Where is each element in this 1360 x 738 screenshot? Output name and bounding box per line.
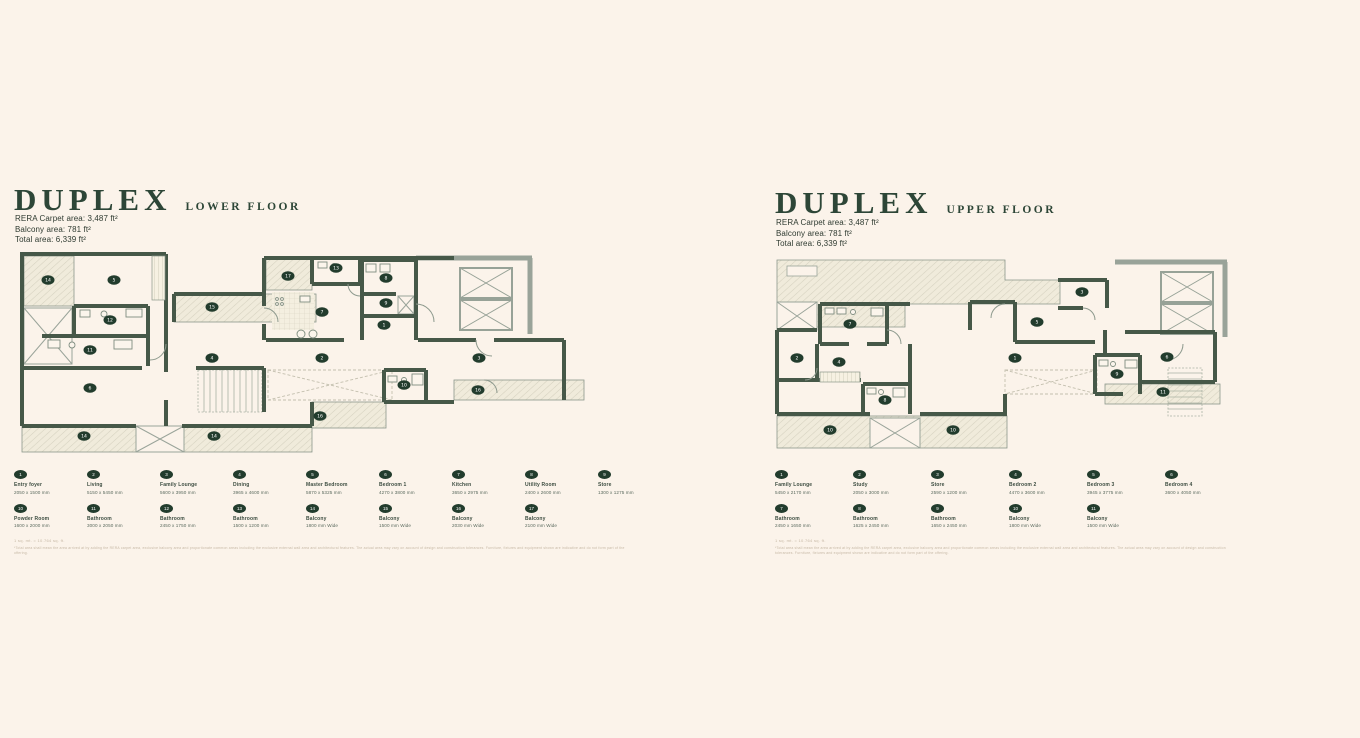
fineprint-lower: 1 sq. mt. = 10.764 sq. ft. *Total area s… <box>14 538 634 555</box>
svg-text:10: 10 <box>401 383 407 389</box>
room-name: Balcony <box>306 516 327 522</box>
room-name: Bathroom <box>87 516 112 522</box>
fineprint-disclaimer-lower: *Total area shall mean the area arrived … <box>14 546 634 555</box>
room-marker-icon: 4 <box>833 357 846 366</box>
svg-text:10: 10 <box>950 428 956 434</box>
room-marker-icon: 3 <box>473 353 486 362</box>
room-name: Kitchen <box>452 482 471 488</box>
room-marker-icon: 8 <box>380 273 393 282</box>
balcony-area-lower: Balcony area: 781 ft² <box>15 225 118 236</box>
floor-plan-lower-svg: 1451211614141517137891423101616 <box>14 248 634 463</box>
room-number-badge-icon: 15 <box>379 504 392 513</box>
room-number-badge-icon: 6 <box>379 470 392 479</box>
room-marker-icon: 2 <box>791 353 804 362</box>
room-dimensions: 2030 mm Wide <box>452 523 484 528</box>
room-marker-icon: 14 <box>78 431 91 440</box>
room-marker-icon: 15 <box>206 302 219 311</box>
floor-plan-upper-svg: 724810101536911 <box>775 252 1230 462</box>
void-dashed-region-upper <box>1005 370 1097 394</box>
room-dimensions: 2400 x 2600 mm <box>525 490 561 495</box>
room-number-badge-icon: 9 <box>931 504 944 513</box>
room-name: Bathroom <box>775 516 800 522</box>
room-name: Master Bedroom <box>306 482 348 488</box>
room-number-badge-icon: 4 <box>1009 470 1022 479</box>
room-marker-icon: 16 <box>472 385 485 394</box>
room-name: Bedroom 4 <box>1165 482 1192 488</box>
room-dimensions: 2590 x 1200 mm <box>931 490 967 495</box>
balcony-area-upper: Balcony area: 781 ft² <box>776 229 879 240</box>
room-name: Utility Room <box>525 482 556 488</box>
svg-text:8: 8 <box>884 398 887 404</box>
legend-item: 17Balcony2100 mm Wide <box>525 504 598 529</box>
room-marker-icon: 4 <box>206 353 219 362</box>
room-number-badge-icon: 1 <box>775 470 788 479</box>
room-name: Bathroom <box>853 516 878 522</box>
legend-item: 9Store1300 x 1275 mm <box>598 470 671 495</box>
room-number-badge-icon: 1 <box>14 470 27 479</box>
room-number-badge-icon: 17 <box>525 504 538 513</box>
room-number-badge-icon: 11 <box>1087 504 1100 513</box>
room-dimensions: 1800 mm Wide <box>1009 523 1041 528</box>
room-number-badge-icon: 8 <box>853 504 866 513</box>
room-number-badge-icon: 16 <box>452 504 465 513</box>
room-marker-icon: 9 <box>1111 369 1124 378</box>
room-marker-icon: 14 <box>42 275 55 284</box>
room-name: Store <box>931 482 945 488</box>
svg-text:15: 15 <box>209 305 215 311</box>
room-dimensions: 2050 x 1500 mm <box>14 490 50 495</box>
room-number-badge-icon: 14 <box>306 504 319 513</box>
room-dimensions: 1300 x 1275 mm <box>598 490 634 495</box>
room-dimensions: 4470 x 3600 mm <box>1009 490 1045 495</box>
svg-text:16: 16 <box>475 388 481 394</box>
room-number-badge-icon: 9 <box>598 470 611 479</box>
legend-item: 13Bathroom1500 x 1200 mm <box>233 504 306 529</box>
room-name: Bathroom <box>233 516 258 522</box>
room-marker-icon: 1 <box>378 320 391 329</box>
room-name: Entry foyer <box>14 482 42 488</box>
legend-item: 1Family Lounge5450 x 2170 mm <box>775 470 853 495</box>
room-number-badge-icon: 6 <box>1165 470 1178 479</box>
room-number-badge-icon: 11 <box>87 504 100 513</box>
room-name: Store <box>598 482 612 488</box>
room-name: Balcony <box>525 516 546 522</box>
room-marker-icon: 13 <box>330 263 343 272</box>
legend-item: 10Balcony1800 mm Wide <box>1009 504 1087 529</box>
legend-upper: 1Family Lounge5450 x 2170 mm2Study2050 x… <box>775 470 1243 528</box>
room-dimensions: 5450 x 2170 mm <box>775 490 811 495</box>
room-dimensions: 3965 x 4600 mm <box>233 490 269 495</box>
title-duplex-upper: DUPLEX <box>775 185 932 221</box>
room-marker-icon: 10 <box>398 380 411 389</box>
room-marker-icon: 10 <box>947 425 960 434</box>
svg-text:11: 11 <box>87 348 93 354</box>
room-marker-icon: 12 <box>104 315 117 324</box>
room-name: Bathroom <box>160 516 185 522</box>
room-name: Dining <box>233 482 249 488</box>
room-number-badge-icon: 3 <box>931 470 944 479</box>
room-marker-icon: 5 <box>1031 317 1044 326</box>
total-area-lower: Total area: 6,339 ft² <box>15 235 118 246</box>
svg-text:6: 6 <box>89 386 92 392</box>
floorplan-page: { "colors": { "background": "#fbf3ea", "… <box>0 0 1360 738</box>
room-dimensions: 4270 x 3800 mm <box>379 490 415 495</box>
room-marker-icon: 7 <box>316 307 329 316</box>
legend-item: 5Bedroom 33945 x 3775 mm <box>1087 470 1165 495</box>
room-marker-icon: 6 <box>1161 352 1174 361</box>
room-number-badge-icon: 7 <box>452 470 465 479</box>
legend-item: 3Family Lounge5600 x 3950 mm <box>160 470 233 495</box>
room-name: Balcony <box>379 516 400 522</box>
rera-carpet-area-upper: RERA Carpet area: 3,487 ft² <box>776 218 879 229</box>
title-duplex-lower: DUPLEX <box>14 182 171 218</box>
room-dimensions: 3650 x 2975 mm <box>452 490 488 495</box>
fineprint-disclaimer-upper: *Total area shall mean the area arrived … <box>775 546 1235 555</box>
title-lower: DUPLEX LOWER FLOOR <box>14 182 301 218</box>
room-dimensions: 1500 mm Wide <box>1087 523 1119 528</box>
room-dimensions: 5150 x 5450 mm <box>87 490 123 495</box>
legend-item: 2Living5150 x 5450 mm <box>87 470 160 495</box>
fineprint-conversion-lower: 1 sq. mt. = 10.764 sq. ft. <box>14 538 634 543</box>
legend-item: 14Balcony1800 mm Wide <box>306 504 379 529</box>
room-number-badge-icon: 2 <box>853 470 866 479</box>
area-block-upper: RERA Carpet area: 3,487 ft² Balcony area… <box>776 218 879 250</box>
room-number-badge-icon: 3 <box>160 470 173 479</box>
svg-text:5: 5 <box>113 278 116 284</box>
svg-text:2: 2 <box>796 356 799 362</box>
room-number-badge-icon: 10 <box>14 504 27 513</box>
svg-text:12: 12 <box>107 318 113 324</box>
legend-item: 7Kitchen3650 x 2975 mm <box>452 470 525 495</box>
legend-item: 5Master Bedroom5870 x 5325 mm <box>306 470 379 495</box>
svg-text:8: 8 <box>385 276 388 282</box>
room-dimensions: 5870 x 5325 mm <box>306 490 342 495</box>
svg-text:5: 5 <box>1036 320 1039 326</box>
room-number-badge-icon: 8 <box>525 470 538 479</box>
svg-text:1: 1 <box>383 323 386 329</box>
void-dashed-region-lower <box>268 370 392 400</box>
room-number-badge-icon: 5 <box>1087 470 1100 479</box>
room-name: Family Lounge <box>775 482 812 488</box>
legend-item: 11Bathroom3000 x 2050 mm <box>87 504 160 529</box>
room-number-badge-icon: 5 <box>306 470 319 479</box>
room-number-badge-icon: 13 <box>233 504 246 513</box>
room-marker-icon: 6 <box>84 383 97 392</box>
svg-text:2: 2 <box>321 356 324 362</box>
legend-item: 12Bathroom2450 x 1750 mm <box>160 504 233 529</box>
room-name: Bedroom 1 <box>379 482 406 488</box>
fineprint-conversion-upper: 1 sq. mt. = 10.764 sq. ft. <box>775 538 1235 543</box>
room-dimensions: 3945 x 3775 mm <box>1087 490 1123 495</box>
room-marker-icon: 11 <box>84 345 97 354</box>
svg-text:9: 9 <box>1116 372 1119 378</box>
room-marker-icon: 1 <box>1009 353 1022 362</box>
room-dimensions: 2100 mm Wide <box>525 523 557 528</box>
fineprint-upper: 1 sq. mt. = 10.764 sq. ft. *Total area s… <box>775 538 1235 555</box>
room-marker-icon: 10 <box>824 425 837 434</box>
room-dimensions: 2450 x 1750 mm <box>160 523 196 528</box>
room-dimensions: 1800 mm Wide <box>306 523 338 528</box>
room-dimensions: 2450 x 1650 mm <box>775 523 811 528</box>
room-marker-icon: 11 <box>1157 387 1170 396</box>
room-marker-icon: 17 <box>282 271 295 280</box>
room-name: Powder Room <box>14 516 49 522</box>
room-name: Bedroom 3 <box>1087 482 1114 488</box>
room-name: Balcony <box>452 516 473 522</box>
svg-text:4: 4 <box>838 360 841 366</box>
svg-text:7: 7 <box>849 322 852 328</box>
wardrobe-strip-upper <box>820 372 860 382</box>
legend-item: 11Balcony1500 mm Wide <box>1087 504 1165 529</box>
title-upper: DUPLEX UPPER FLOOR <box>775 185 1056 221</box>
legend-item: 6Bedroom 43600 x 4050 mm <box>1165 470 1243 495</box>
terrace-hatch-areas <box>777 260 1220 448</box>
stairs-lower <box>198 370 262 412</box>
room-marker-icon: 8 <box>879 395 892 404</box>
legend-item: 9Bathroom1650 x 2450 mm <box>931 504 1009 529</box>
svg-text:7: 7 <box>321 310 324 316</box>
room-name: Family Lounge <box>160 482 197 488</box>
room-marker-icon: 16 <box>314 411 327 420</box>
room-dimensions: 1500 x 1200 mm <box>233 523 269 528</box>
svg-text:14: 14 <box>211 434 217 440</box>
room-dimensions: 1600 x 2000 mm <box>14 523 50 528</box>
total-area-upper: Total area: 6,339 ft² <box>776 239 879 250</box>
room-marker-icon: 7 <box>844 319 857 328</box>
room-marker-icon: 5 <box>108 275 121 284</box>
room-marker-icon: 2 <box>316 353 329 362</box>
room-marker-icon: 3 <box>1076 287 1089 296</box>
subtitle-upper-floor: UPPER FLOOR <box>946 204 1056 216</box>
room-marker-icon: 9 <box>380 298 393 307</box>
svg-text:17: 17 <box>285 274 291 280</box>
lift-shafts-upper <box>1115 262 1227 337</box>
room-marker-icon: 14 <box>208 431 221 440</box>
room-name: Study <box>853 482 868 488</box>
svg-text:16: 16 <box>317 414 323 420</box>
subtitle-lower-floor: LOWER FLOOR <box>185 201 300 213</box>
legend-lower: 1Entry foyer2050 x 1500 mm2Living5150 x … <box>14 470 671 528</box>
legend-item: 1Entry foyer2050 x 1500 mm <box>14 470 87 495</box>
room-name: Bathroom <box>931 516 956 522</box>
legend-item: 6Bedroom 14270 x 3800 mm <box>379 470 452 495</box>
room-name: Living <box>87 482 103 488</box>
legend-item: 2Study2050 x 3000 mm <box>853 470 931 495</box>
room-number-badge-icon: 2 <box>87 470 100 479</box>
svg-text:3: 3 <box>478 356 481 362</box>
room-name: Balcony <box>1009 516 1030 522</box>
room-dimensions: 5600 x 3950 mm <box>160 490 196 495</box>
room-name: Balcony <box>1087 516 1108 522</box>
room-dimensions: 1500 mm Wide <box>379 523 411 528</box>
svg-text:11: 11 <box>1160 390 1166 396</box>
legend-item: 10Powder Room1600 x 2000 mm <box>14 504 87 529</box>
room-number-badge-icon: 12 <box>160 504 173 513</box>
room-dimensions: 3600 x 4050 mm <box>1165 490 1201 495</box>
legend-item: 15Balcony1500 mm Wide <box>379 504 452 529</box>
wardrobe-strip-lower <box>152 256 165 300</box>
svg-text:1: 1 <box>1014 356 1017 362</box>
legend-item: 16Balcony2030 mm Wide <box>452 504 525 529</box>
svg-text:10: 10 <box>827 428 833 434</box>
svg-text:14: 14 <box>81 434 87 440</box>
legend-item: 8Utility Room2400 x 2600 mm <box>525 470 598 495</box>
room-number-badge-icon: 7 <box>775 504 788 513</box>
svg-text:14: 14 <box>45 278 51 284</box>
room-dimensions: 3000 x 2050 mm <box>87 523 123 528</box>
area-block-lower: RERA Carpet area: 3,487 ft² Balcony area… <box>15 214 118 246</box>
legend-item: 7Bathroom2450 x 1650 mm <box>775 504 853 529</box>
svg-text:3: 3 <box>1081 290 1084 296</box>
room-dimensions: 1625 x 2450 mm <box>853 523 889 528</box>
lift-shafts-lower <box>416 258 532 334</box>
room-name: Bedroom 2 <box>1009 482 1036 488</box>
svg-text:9: 9 <box>385 301 388 307</box>
room-dimensions: 2050 x 3000 mm <box>853 490 889 495</box>
legend-item: 8Bathroom1625 x 2450 mm <box>853 504 931 529</box>
legend-item: 4Bedroom 24470 x 3600 mm <box>1009 470 1087 495</box>
legend-item: 4Dining3965 x 4600 mm <box>233 470 306 495</box>
room-number-badge-icon: 4 <box>233 470 246 479</box>
svg-text:6: 6 <box>1166 355 1169 361</box>
svg-text:13: 13 <box>333 266 339 272</box>
room-dimensions: 1650 x 2450 mm <box>931 523 967 528</box>
room-number-badge-icon: 10 <box>1009 504 1022 513</box>
rera-carpet-area-lower: RERA Carpet area: 3,487 ft² <box>15 214 118 225</box>
svg-text:4: 4 <box>211 356 214 362</box>
legend-item: 3Store2590 x 1200 mm <box>931 470 1009 495</box>
